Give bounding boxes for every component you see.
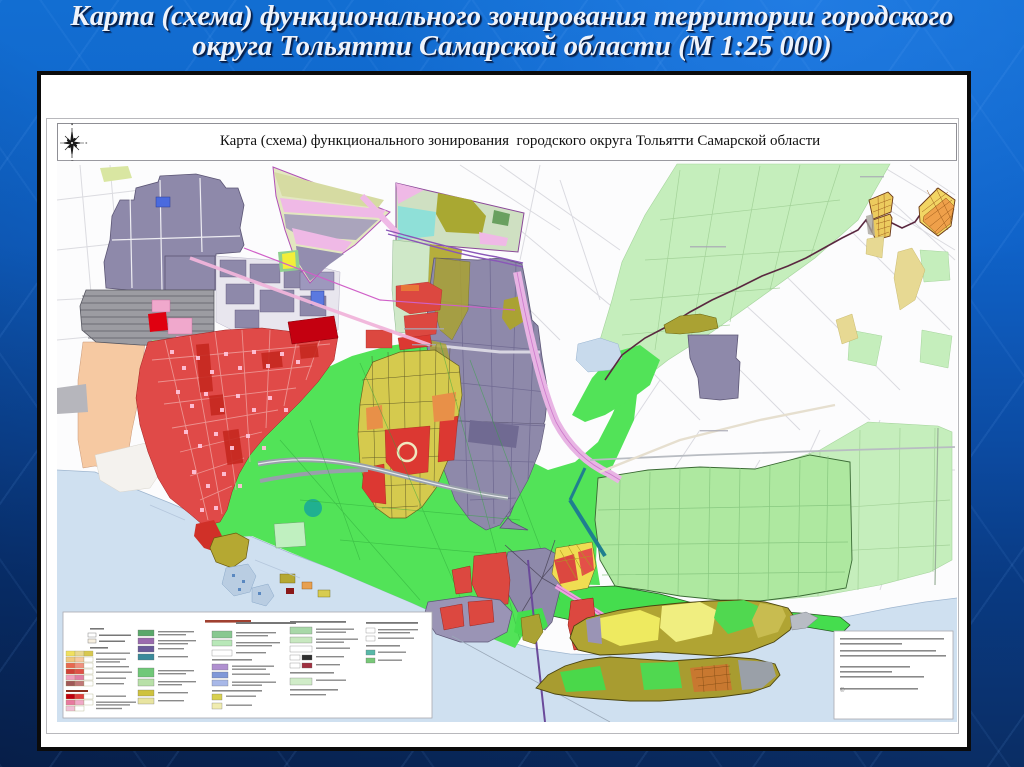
svg-text:©: © [840,687,845,694]
